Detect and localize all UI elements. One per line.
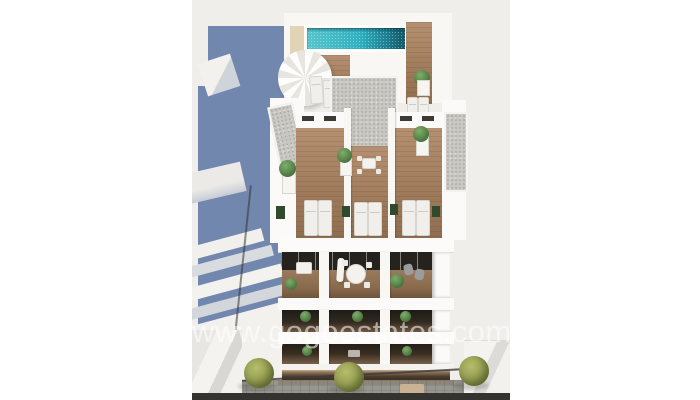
pavement-brown-tint <box>278 380 454 385</box>
sun-lounger <box>354 202 368 236</box>
balcony-chair <box>366 262 372 268</box>
bistro-chair <box>357 169 362 174</box>
sun-lounger <box>368 202 382 236</box>
bistro-chair <box>376 169 381 174</box>
balcony-plant <box>390 274 404 288</box>
terrace-c-window-slot <box>422 116 434 121</box>
facade-band <box>278 298 454 310</box>
terrace-a-window-slot <box>324 116 336 121</box>
facade-band <box>278 238 454 253</box>
balcony-plant <box>285 278 297 290</box>
potted-plant-planter <box>417 80 430 96</box>
sun-lounger <box>309 76 324 105</box>
balcony-chair <box>342 260 348 266</box>
balcony-divider-wall <box>380 252 390 298</box>
gravel-roof-right <box>444 112 468 192</box>
potted-plant-foliage <box>413 126 429 142</box>
balcony-armchair <box>414 268 425 280</box>
agency-watermark: www.gogoestates.com <box>192 314 510 350</box>
potted-plant-foliage <box>337 148 352 163</box>
balcony-table-small <box>296 262 312 274</box>
planter-box-dark <box>432 206 440 217</box>
balcony-chair <box>344 282 350 288</box>
street-bench <box>400 384 424 393</box>
potted-plant-foliage <box>279 160 296 177</box>
bistro-chair <box>376 156 381 161</box>
rooftop-pool <box>307 28 405 49</box>
terrace-c-window-slot <box>400 116 412 121</box>
balcony-row-1 <box>282 252 450 298</box>
sun-lounger <box>318 200 332 236</box>
terrace-a-window-slot <box>302 116 314 121</box>
balcony-round-table <box>346 264 366 284</box>
sun-lounger <box>416 200 430 236</box>
balcony-table-small <box>348 350 360 357</box>
street-tree <box>244 358 274 388</box>
sun-lounger <box>402 200 416 236</box>
screenshot-canvas: www.gogoestates.com <box>0 0 700 400</box>
balcony-divider-wall <box>319 252 329 298</box>
street-tree <box>334 362 364 392</box>
balcony-end-wall <box>432 252 450 298</box>
sun-lounger <box>304 200 318 236</box>
property-render-photo: www.gogoestates.com <box>192 0 510 400</box>
planter-box-dark <box>276 206 285 219</box>
balcony-chair <box>364 282 370 288</box>
terrace-divider-wall <box>388 108 395 240</box>
planter-box-dark <box>390 204 398 215</box>
road-dark-strip <box>192 393 510 400</box>
bistro-table <box>362 158 376 169</box>
street-tree <box>459 356 489 386</box>
planter-box-dark <box>342 206 350 217</box>
